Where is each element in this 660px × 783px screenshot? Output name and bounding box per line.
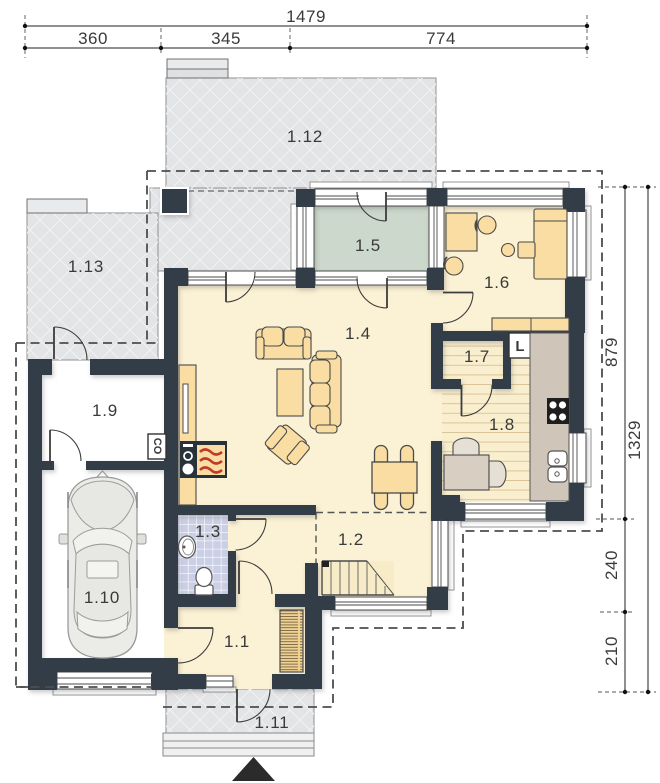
svg-text:1.8: 1.8 — [489, 415, 515, 434]
svg-text:CO: CO — [151, 438, 163, 455]
svg-text:1.13: 1.13 — [68, 257, 104, 276]
svg-text:879: 879 — [602, 337, 621, 367]
svg-text:240: 240 — [602, 550, 621, 580]
svg-text:1.3: 1.3 — [195, 522, 221, 541]
svg-text:1.11: 1.11 — [254, 713, 289, 732]
svg-text:1.2: 1.2 — [338, 530, 364, 549]
svg-text:1.1: 1.1 — [224, 632, 250, 651]
svg-text:345: 345 — [211, 29, 241, 48]
svg-text:1.4: 1.4 — [345, 324, 371, 343]
svg-text:L: L — [515, 338, 524, 355]
svg-text:1479: 1479 — [286, 7, 326, 26]
svg-text:1.9: 1.9 — [92, 401, 118, 420]
svg-text:1329: 1329 — [625, 420, 644, 460]
svg-text:774: 774 — [426, 29, 456, 48]
svg-text:1.7: 1.7 — [464, 347, 490, 366]
svg-text:1.12: 1.12 — [287, 127, 323, 146]
svg-text:210: 210 — [602, 636, 621, 666]
svg-text:1.10: 1.10 — [84, 588, 120, 607]
svg-text:1.5: 1.5 — [355, 236, 381, 255]
svg-text:1.6: 1.6 — [484, 273, 510, 292]
svg-text:360: 360 — [78, 29, 108, 48]
